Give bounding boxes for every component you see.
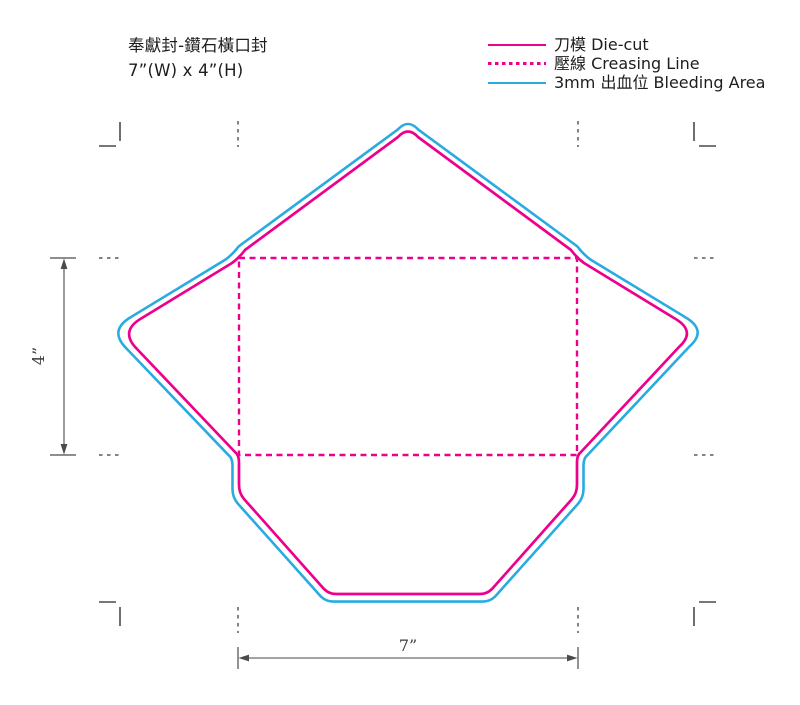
envelope-diagram: 4” 7” (0, 0, 800, 705)
width-dimension-arrowhead-left (239, 655, 250, 662)
page-canvas: 奉獻封-鑽石橫口封 7”(W) x 4”(H) 刀模 Die-cut 壓線 Cr… (0, 0, 800, 705)
height-dimension-arrowhead-top (61, 259, 68, 270)
edge-dash-marks (99, 121, 717, 633)
bleeding-area-outline (118, 124, 697, 602)
width-dimension-label: 7” (399, 636, 417, 655)
height-dimension: 4” (29, 258, 76, 455)
die-cut-outline (129, 132, 687, 595)
corner-crop-marks (99, 122, 716, 626)
creasing-line-rect (239, 258, 577, 455)
width-dimension: 7” (238, 636, 578, 669)
height-dimension-arrowhead-bottom (61, 444, 68, 455)
width-dimension-arrowhead-right (567, 655, 578, 662)
height-dimension-label: 4” (29, 347, 48, 365)
